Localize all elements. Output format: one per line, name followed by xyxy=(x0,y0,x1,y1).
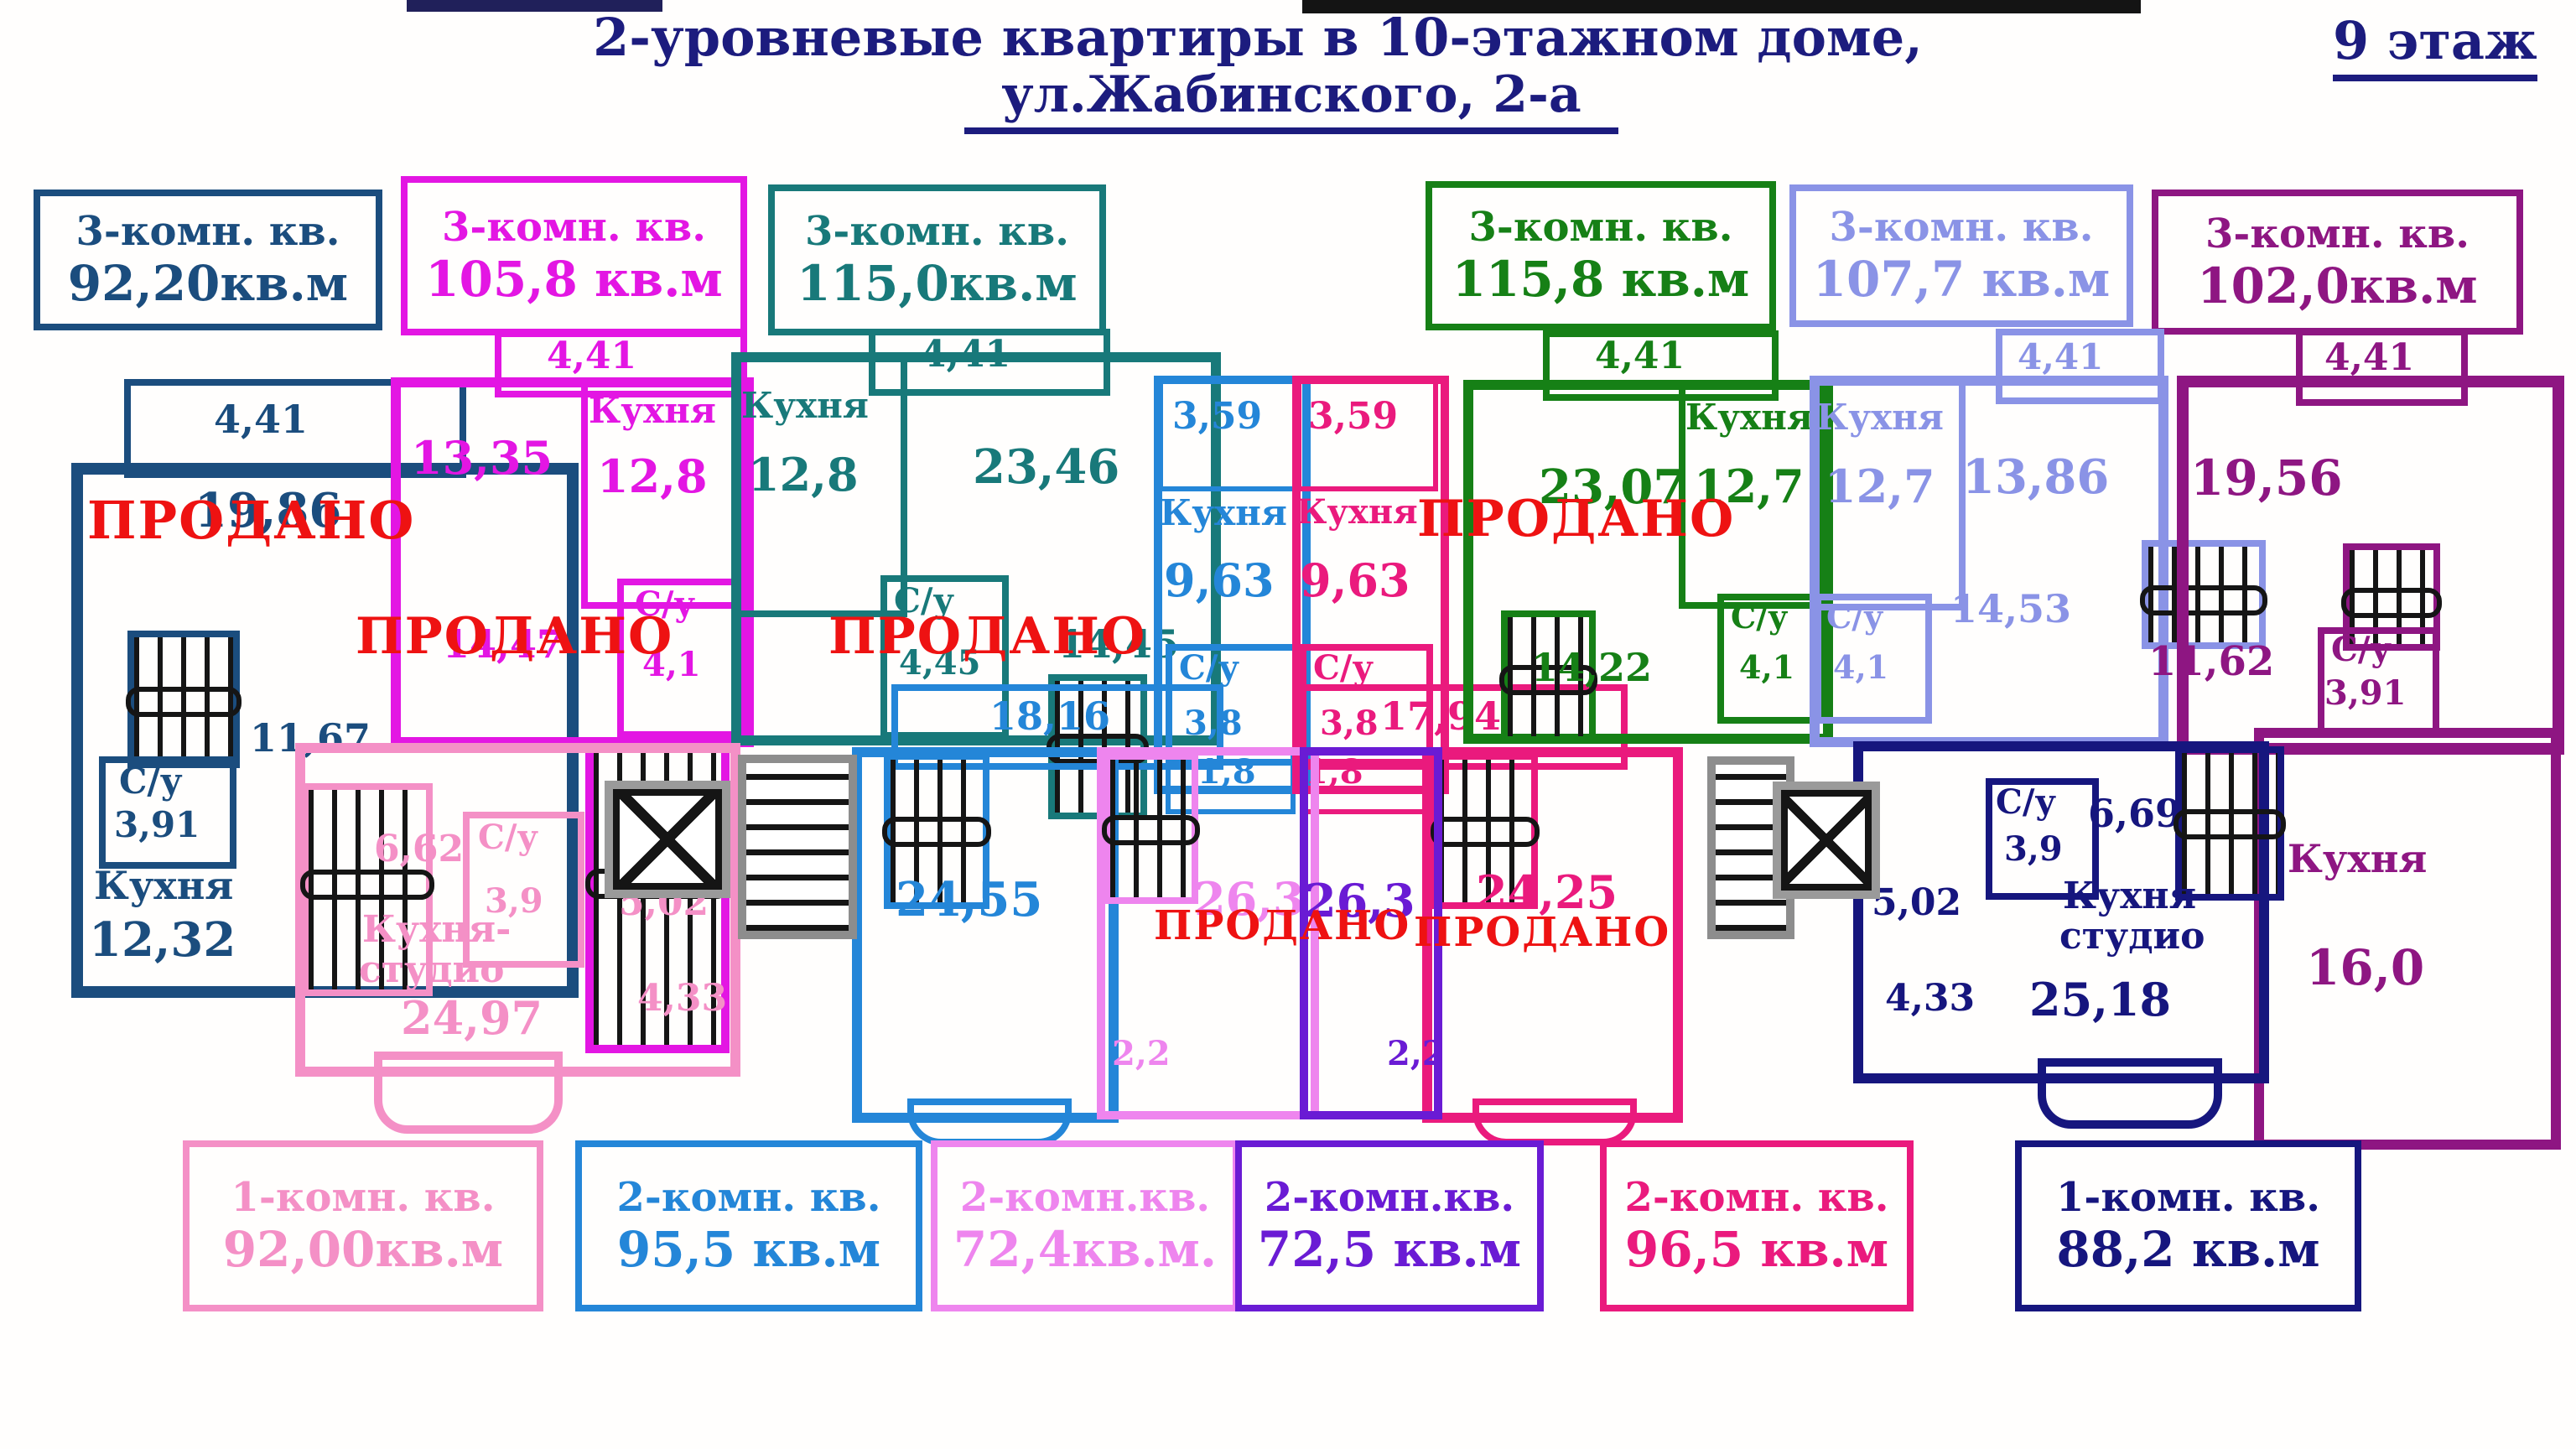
apt-label-102-0: 3-комн. кв. 102,0кв.м xyxy=(2152,190,2523,335)
apt8-room-area: 19,56 xyxy=(2190,453,2343,504)
apt4-wc-label: С/у xyxy=(1179,651,1239,686)
apt1-wc-area: 3,91 xyxy=(114,807,200,844)
apt-type: 1-комн. кв. xyxy=(2022,1174,2355,1221)
apt-label-95-5: 2-комн. кв. 95,5 кв.м xyxy=(575,1140,922,1311)
apt-area: 72,5 кв.м xyxy=(1242,1221,1537,1278)
apt4-kitchen-area: 9,63 xyxy=(1164,557,1275,605)
apt-area: 115,0кв.м xyxy=(775,255,1099,312)
elevator-icon-right xyxy=(1781,790,1872,891)
apt5-bay-window xyxy=(1472,1098,1637,1145)
apt-area: 72,4кв.м. xyxy=(937,1221,1233,1278)
apt12-hall-area: 6,69 xyxy=(2088,793,2182,834)
apt2-kitchen-area: 12,8 xyxy=(597,453,708,501)
apt1-balcony-area: 4,41 xyxy=(214,399,308,439)
apt8-kitchen-area: 16,0 xyxy=(2306,943,2424,994)
apt-type: 2-комн. кв. xyxy=(582,1174,916,1221)
apt9-wc-label: С/у xyxy=(478,820,538,855)
apt5-wc-label: С/у xyxy=(1313,651,1374,686)
apt6-wc-area: 4,1 xyxy=(1739,651,1794,684)
apt4-room-area: 24,55 xyxy=(896,875,1042,925)
sold-stamp-apt1: ПРОДАНО xyxy=(87,490,415,551)
apt12-kitchen-label-line2: студио xyxy=(2059,917,2205,956)
apt8-wc-area: 3,91 xyxy=(2324,676,2406,711)
apt7-hall-area: 14,53 xyxy=(1950,589,2071,629)
apt5-kitchen-label: Кухня xyxy=(1296,495,1418,530)
apt7-kitchen-label: Кухня xyxy=(1816,399,1944,436)
apt-area: 107,7 кв.м xyxy=(1796,251,2127,308)
apt-type: 3-комн. кв. xyxy=(408,204,740,251)
elevator-icon-left xyxy=(613,789,722,890)
apt-area: 105,8 кв.м xyxy=(408,251,740,308)
apt7-wc-area: 4,1 xyxy=(1833,651,1888,684)
apt9-bay-window xyxy=(374,1052,563,1134)
apt8-balcony-area: 4,41 xyxy=(2324,339,2414,377)
apt12-bay-window xyxy=(2038,1058,2222,1129)
floor-plan-page: 2-уровневые квартиры в 10-этажном доме, … xyxy=(0,0,2576,1449)
apt-type: 3-комн. кв. xyxy=(1432,204,1769,251)
floor-badge: 9 этаж xyxy=(2333,10,2537,81)
apt-type: 2-комн.кв. xyxy=(1242,1174,1537,1221)
page-title-line2: ул.Жабинского, 2-а xyxy=(964,65,1618,134)
apt11-balcony-area: 2,2 xyxy=(1387,1036,1446,1072)
apt-type: 3-комн. кв. xyxy=(1796,204,2127,251)
apt9-kitchen-area: 24,97 xyxy=(401,995,543,1042)
apt12-room2-area: 5,02 xyxy=(1872,884,1961,922)
apt1-kitchen-area: 12,32 xyxy=(89,916,236,965)
sold-stamp-apt5: ПРОДАНО xyxy=(1414,909,1670,956)
apt7-balcony-area: 4,41 xyxy=(2018,339,2103,376)
apt12-wc-label: С/у xyxy=(1996,785,2056,820)
apt1-kitchen-label: Кухня xyxy=(94,865,233,906)
apt1-wc-label: С/у xyxy=(119,763,183,800)
apt7-room-area: 13,86 xyxy=(1962,453,2109,502)
apt-area: 102,0кв.м xyxy=(2158,257,2516,314)
apt6-wc-label: С/у xyxy=(1731,600,1788,634)
apt4-bay-window xyxy=(907,1098,1072,1145)
apt9-room3-area: 4,33 xyxy=(637,979,727,1018)
apt3-kitchen-area: 12,8 xyxy=(748,451,859,499)
apt3-room-area: 23,46 xyxy=(973,443,1119,492)
apt10-balcony-area: 2,2 xyxy=(1112,1036,1171,1072)
apt6-kitchen-label: Кухня xyxy=(1685,399,1813,436)
apt2-room-area: 13,35 xyxy=(411,434,553,482)
apt-label-72-5: 2-комн.кв. 72,5 кв.м xyxy=(1235,1140,1544,1311)
apt9-kitchen-label-line2: студио xyxy=(359,951,505,989)
stairwell-icon-left xyxy=(738,755,857,939)
apt12-room3-area: 4,33 xyxy=(1885,979,1975,1018)
apt2-balcony-area: 4,41 xyxy=(547,337,636,376)
apt8-kitchen-label: Кухня xyxy=(2288,839,2427,879)
apt6-balcony-area: 4,41 xyxy=(1595,337,1685,376)
apt-type: 3-комн. кв. xyxy=(2158,210,2516,257)
apt2-kitchen-label: Кухня xyxy=(589,392,716,429)
apt12-wc-area: 3,9 xyxy=(2004,832,2063,867)
apt-type: 3-комн. кв. xyxy=(775,208,1099,255)
apt7-kitchen-area: 12,7 xyxy=(1825,463,1935,511)
apt-type: 2-комн.кв. xyxy=(937,1174,1233,1221)
apt1-stairs-icon xyxy=(127,631,240,768)
apt8-wc-label: С/у xyxy=(2331,632,2392,667)
apt8-hall-area: 11,62 xyxy=(2148,641,2274,683)
apt4-balcony-area: 3,59 xyxy=(1172,397,1262,436)
sold-stamp-apt2: ПРОДАНО xyxy=(356,607,673,666)
apt-area: 88,2 кв.м xyxy=(2022,1221,2355,1278)
apt6-hall-area: 14,22 xyxy=(1531,647,1652,688)
apt3-balcony-area: 4,41 xyxy=(921,335,1010,374)
apt4-hall-area: 18,16 xyxy=(989,696,1110,736)
apt3-kitchen-label: Кухня xyxy=(741,387,869,424)
apt9-kitchen-label-line1: Кухня- xyxy=(362,911,511,949)
apt-area: 115,8 кв.м xyxy=(1432,251,1769,308)
apt9-hall-area: 6,62 xyxy=(374,830,464,869)
apt-label-72-4: 2-комн.кв. 72,4кв.м. xyxy=(931,1140,1239,1311)
apt12-kitchen-label-line1: Кухня- xyxy=(2063,877,2211,916)
apt7-wc-label: С/у xyxy=(1826,600,1883,634)
apt-area: 92,00кв.м xyxy=(190,1221,537,1278)
sold-stamp-apt3: ПРОДАНО xyxy=(828,607,1146,666)
apt-label-92-20: 3-комн. кв. 92,20кв.м xyxy=(34,190,382,330)
apt12-kitchen-area: 25,18 xyxy=(2029,976,2171,1024)
apt-type: 2-комн. кв. xyxy=(1607,1174,1907,1221)
apt-label-107-7: 3-комн. кв. 107,7 кв.м xyxy=(1789,184,2133,327)
sold-stamp-apt6: ПРОДАНО xyxy=(1417,490,1735,548)
page-title-line1: 2-уровневые квартиры в 10-этажном доме, xyxy=(520,7,1996,68)
apt-type: 3-комн. кв. xyxy=(40,208,376,255)
apt-area: 95,5 кв.м xyxy=(582,1221,916,1278)
apt5-kitchen-area: 9,63 xyxy=(1300,557,1410,605)
apt-area: 92,20кв.м xyxy=(40,255,376,312)
apt-type: 1-комн. кв. xyxy=(190,1174,537,1221)
apt4-kitchen-label: Кухня xyxy=(1160,495,1287,532)
apt10-stairs-icon xyxy=(1104,753,1198,904)
apt-label-115-0: 3-комн. кв. 115,0кв.м xyxy=(768,184,1106,335)
apt-label-88-2: 1-комн. кв. 88,2 кв.м xyxy=(2015,1140,2361,1311)
apt-label-105-8: 3-комн. кв. 105,8 кв.м xyxy=(401,176,747,335)
sold-stamp-apt10: ПРОДАНО xyxy=(1154,902,1410,949)
apt5-balcony-area: 3,59 xyxy=(1308,397,1398,436)
apt-label-92-00: 1-комн. кв. 92,00кв.м xyxy=(183,1140,543,1311)
apt-label-96-5: 2-комн. кв. 96,5 кв.м xyxy=(1600,1140,1914,1311)
apt-area: 96,5 кв.м xyxy=(1607,1221,1907,1278)
apt-label-115-8: 3-комн. кв. 115,8 кв.м xyxy=(1426,181,1776,330)
